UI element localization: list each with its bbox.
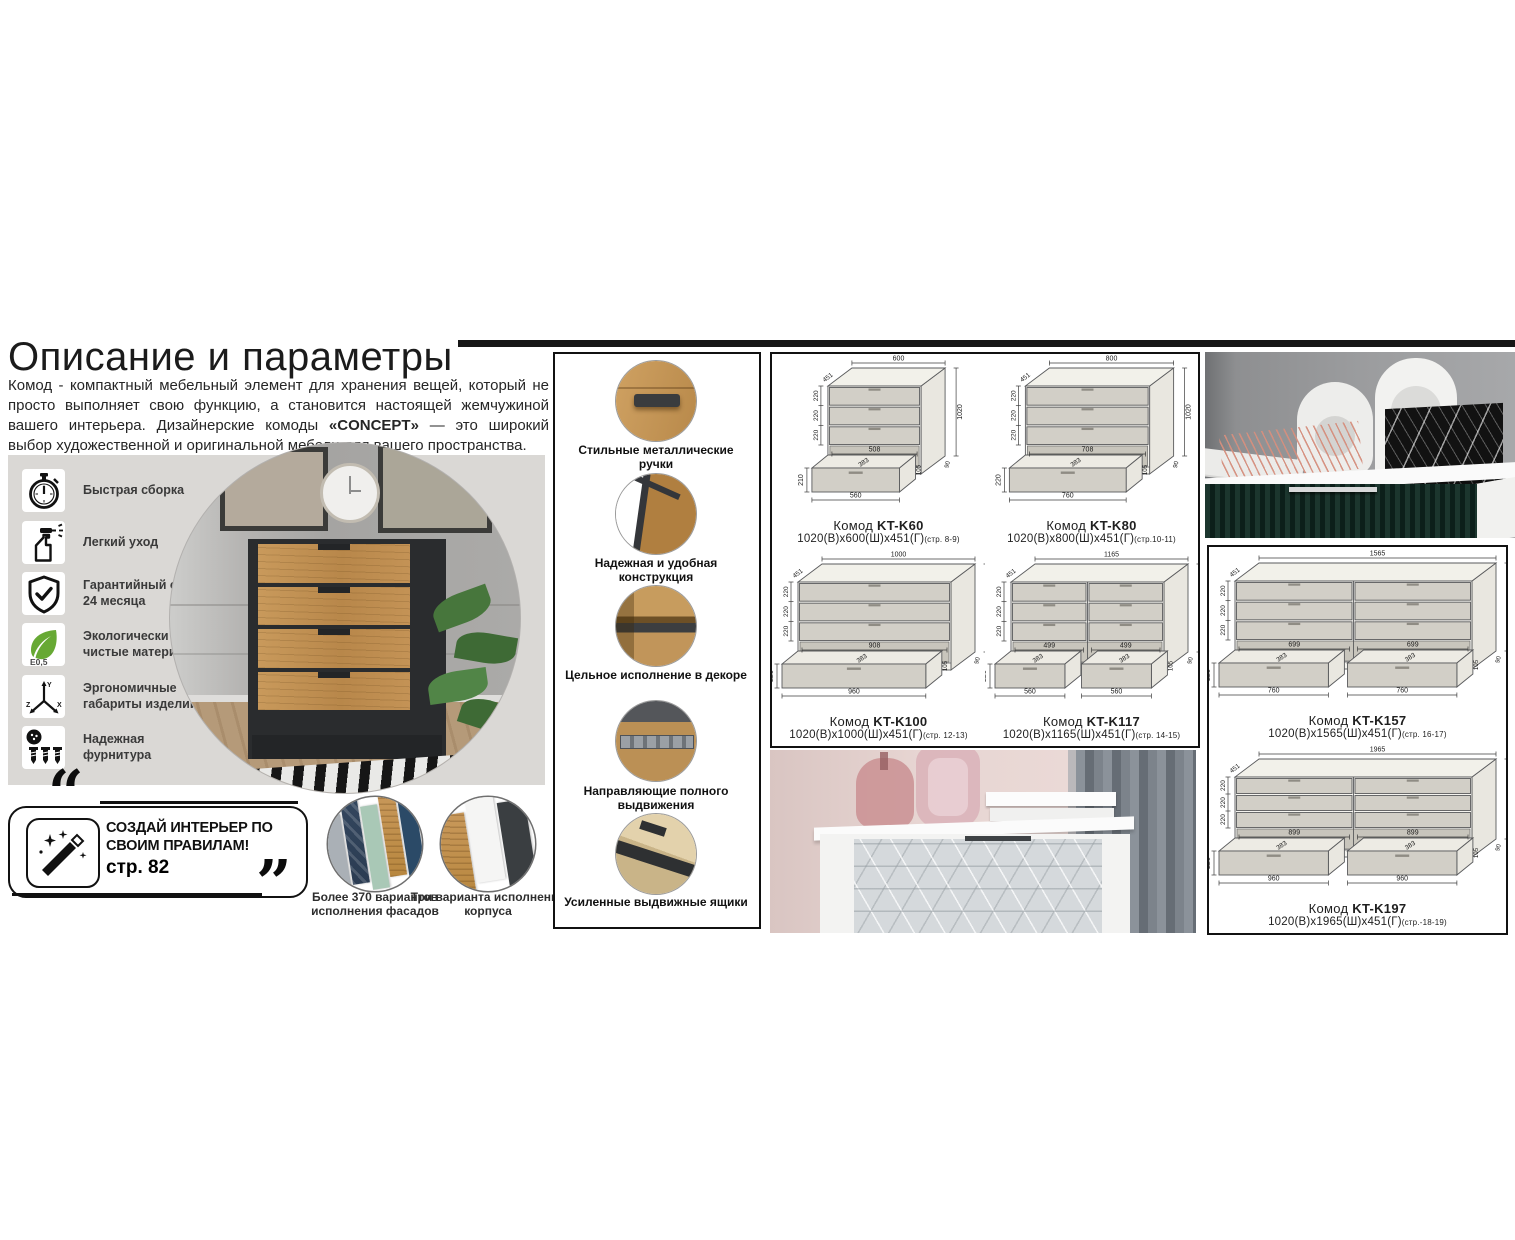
svg-text:220: 220	[813, 410, 820, 421]
product-drawing-kt-k60: 508383560210105600451102022022022090Комо…	[772, 354, 985, 550]
drawer-slides-photo	[616, 701, 696, 781]
catalog-page: Описание и параметры Комод - компактный …	[0, 0, 1515, 1240]
product-drawing-kt-k100: 9083839602201051000451102022022022090Ком…	[772, 550, 985, 746]
shield-check-icon	[22, 572, 65, 615]
product-caption: Комод KT-K80	[985, 518, 1198, 533]
svg-text:560: 560	[1024, 689, 1036, 696]
svg-text:699: 699	[1288, 642, 1300, 649]
svg-text:105: 105	[1473, 659, 1480, 670]
svg-text:899: 899	[1407, 830, 1419, 837]
svg-text:708: 708	[1082, 447, 1094, 454]
books	[986, 792, 1116, 806]
svg-text:90: 90	[1172, 460, 1181, 469]
svg-text:220: 220	[996, 625, 1003, 636]
pink-vase	[856, 758, 914, 828]
detail-label: Надежная и удобная конструкция	[561, 556, 751, 584]
svg-text:220: 220	[1220, 585, 1227, 596]
detail-label: Стильные металлические ручки	[561, 443, 751, 471]
picture-frame	[220, 447, 328, 531]
svg-text:600: 600	[893, 356, 905, 363]
product-caption: Комод KT-K60	[772, 518, 985, 533]
svg-text:220: 220	[985, 670, 988, 682]
svg-text:220: 220	[1220, 624, 1227, 635]
magic-wand-icon	[26, 818, 100, 888]
promo-top-line	[100, 801, 298, 804]
drawings-box-small: 508383560210105600451102022022022090Комо…	[770, 352, 1200, 748]
decor-shelf-photo	[616, 586, 696, 666]
drawings-box-large: 6993837602206993837601051565451102022022…	[1207, 545, 1508, 935]
svg-text:90: 90	[1494, 843, 1503, 852]
svg-text:90: 90	[1494, 655, 1503, 664]
svg-text:760: 760	[1396, 688, 1408, 695]
stopwatch-icon	[22, 469, 65, 512]
product-drawing-kt-k80: 708383760220105800451102022022022090Комо…	[985, 354, 1198, 550]
hero-commode-photo	[170, 443, 520, 793]
svg-text:499: 499	[1043, 643, 1055, 650]
svg-text:105: 105	[1142, 464, 1149, 475]
svg-text:908: 908	[869, 643, 881, 650]
svg-text:220: 220	[995, 474, 1002, 486]
details-box: Стильные металлические ручкиНадежная и у…	[553, 352, 761, 929]
svg-text:220: 220	[1209, 669, 1212, 681]
svg-text:220: 220	[1010, 390, 1017, 401]
svg-text:220: 220	[1220, 780, 1227, 791]
svg-text:1020: 1020	[1186, 404, 1193, 420]
product-caption: Комод KT-K157	[1209, 713, 1506, 728]
product-size: 1020(В)x600(Ш)x451(Г)(стр. 8-9)	[772, 533, 985, 545]
svg-text:220: 220	[996, 586, 1003, 597]
metal-handle-photo	[616, 361, 696, 441]
svg-text:220: 220	[813, 429, 820, 440]
pink-vase	[916, 750, 980, 828]
svg-text:960: 960	[1396, 876, 1408, 883]
intro-brand: «CONCEPT»	[329, 417, 419, 434]
svg-text:210: 210	[798, 474, 805, 486]
product-size: 1020(В)x1165(Ш)x451(Г)(стр. 14-15)	[985, 729, 1198, 741]
product-caption: Комод KT-K197	[1209, 901, 1506, 916]
spray-bottle-icon	[22, 521, 65, 564]
hex-drawer-front	[854, 839, 1102, 933]
svg-text:1000: 1000	[891, 552, 907, 559]
variant-swatch-circle	[441, 797, 535, 891]
svg-text:90: 90	[973, 656, 982, 665]
svg-text:105: 105	[942, 660, 949, 671]
xyz-axes-icon: YZX	[22, 675, 65, 718]
svg-text:220: 220	[783, 586, 790, 597]
detail-label: Усиленные выдвижные ящики	[561, 895, 751, 909]
product-size: 1020(В)x1965(Ш)x451(Г)(стр.-18-19)	[1209, 916, 1506, 928]
svg-text:899: 899	[1288, 830, 1300, 837]
svg-text:760: 760	[1268, 688, 1280, 695]
green-sideboard-vases-photo	[1205, 352, 1515, 538]
product-caption: Комод KT-K100	[772, 714, 985, 729]
svg-text:220: 220	[1220, 605, 1227, 616]
variant-label: Три варианта исполнения корпуса	[408, 890, 568, 919]
page-title: Описание и параметры	[8, 335, 453, 380]
svg-text:220: 220	[1010, 410, 1017, 421]
close-quote: ”	[256, 852, 292, 914]
wall-clock	[320, 463, 380, 523]
product-size: 1020(В)x1000(Ш)x451(Г)(стр. 12-13)	[772, 729, 985, 741]
black-oak-commode	[248, 539, 446, 759]
fluted-drawer-front	[1205, 484, 1477, 538]
svg-text:1965: 1965	[1370, 747, 1386, 754]
svg-text:220: 220	[783, 606, 790, 617]
svg-text:560: 560	[1111, 689, 1123, 696]
svg-text:220: 220	[1220, 797, 1227, 808]
svg-text:960: 960	[848, 689, 860, 696]
svg-text:105: 105	[1167, 660, 1174, 671]
svg-text:560: 560	[850, 493, 862, 500]
svg-text:220: 220	[996, 606, 1003, 617]
svg-text:1565: 1565	[1370, 551, 1386, 558]
svg-text:760: 760	[1062, 493, 1074, 500]
svg-text:220: 220	[1010, 429, 1017, 440]
white-hex-commode-photo	[770, 750, 1196, 933]
promo-bottom-line	[12, 893, 262, 896]
svg-text:90: 90	[943, 460, 952, 469]
construction-corner-photo	[616, 474, 696, 554]
svg-text:220: 220	[783, 625, 790, 636]
svg-text:508: 508	[869, 447, 881, 454]
svg-text:220: 220	[1220, 814, 1227, 825]
svg-text:220: 220	[772, 670, 775, 682]
svg-text:E0,5: E0,5	[30, 657, 48, 666]
svg-text:Y: Y	[47, 682, 52, 689]
product-drawing-kt-k157: 6993837602206993837601051565451102022022…	[1209, 547, 1506, 745]
product-size: 1020(В)x800(Ш)x451(Г)(стр.10-11)	[985, 533, 1198, 545]
product-drawing-kt-k197: 8993839602208993839601051965451102022022…	[1209, 745, 1506, 933]
svg-text:X: X	[57, 702, 62, 709]
detail-label: Цельное исполнение в декоре	[561, 668, 751, 682]
svg-text:220: 220	[1209, 857, 1212, 869]
svg-text:105: 105	[915, 464, 922, 475]
product-caption: Комод KT-K117	[985, 714, 1198, 729]
picture-frame	[378, 443, 492, 533]
svg-text:960: 960	[1268, 876, 1280, 883]
metal-handle	[1289, 487, 1377, 492]
metal-handle	[965, 836, 1031, 841]
product-drawing-kt-k117: 4993835602204993835601051165451102022022…	[985, 550, 1198, 746]
promo-page-ref: стр. 82	[106, 857, 169, 879]
svg-text:Z: Z	[26, 702, 31, 709]
svg-text:499: 499	[1120, 643, 1132, 650]
title-rule	[458, 340, 1515, 347]
svg-text:699: 699	[1407, 642, 1419, 649]
drawer-bottom-photo	[616, 814, 696, 894]
detail-label: Направляющие полного выдвижения	[561, 784, 751, 812]
svg-text:105: 105	[1473, 847, 1480, 858]
svg-text:1165: 1165	[1104, 552, 1119, 559]
promo-text: СОЗДАЙ ИНТЕРЬЕР ПО СВОИМ ПРАВИЛАМ!	[106, 820, 298, 855]
variant-swatch-circle	[328, 797, 422, 891]
white-commode	[820, 834, 1130, 933]
svg-text:800: 800	[1106, 356, 1118, 363]
svg-text:220: 220	[813, 390, 820, 401]
svg-text:90: 90	[1186, 656, 1195, 665]
svg-text:1020: 1020	[957, 404, 964, 420]
eco-leaf-icon: E0,5	[22, 623, 65, 666]
product-size: 1020(В)x1565(Ш)x451(Г)(стр. 16-17)	[1209, 728, 1506, 740]
